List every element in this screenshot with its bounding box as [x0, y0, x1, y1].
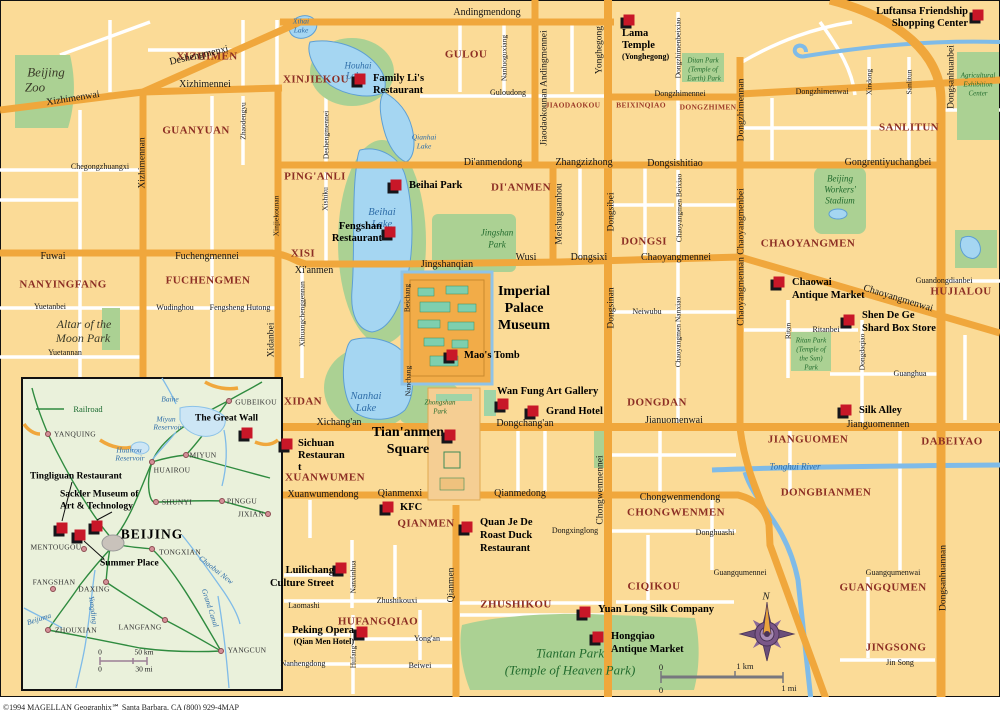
lama-temple-label: Temple: [622, 41, 655, 52]
label-fuchengmen: FUCHENGMEN: [166, 276, 251, 287]
family-lis-restaurant-label: Restaurant: [373, 86, 423, 97]
label-ritan-park: Ritan Park: [796, 338, 827, 345]
label-yonghegong: Yonghegong: [595, 26, 605, 74]
tiananmen-square-marker: [445, 430, 456, 441]
label-park: Park: [433, 409, 447, 416]
label-jingsong: JINGSONG: [866, 643, 927, 654]
label-dongzhimennan: Dongzhimennan: [737, 79, 747, 142]
label-xihai: Xihai: [293, 17, 309, 25]
shen-de-ge-shard-box-store-label: Shen De Ge: [862, 311, 915, 322]
the-great-wall-marker: [242, 428, 253, 439]
label-nanyingfang: NANYINGFANG: [19, 280, 106, 291]
label-dongxinglong: Dongxinglong: [552, 527, 598, 535]
label-stadium: Stadium: [825, 197, 855, 206]
label-dongsixi: Dongsixi: [571, 253, 608, 263]
label-guloudong: Guloudong: [490, 89, 526, 97]
label-jingshan: Jingshan: [481, 229, 514, 238]
wan-fung-art-gallery-label: Wan Fung Art Gallery: [497, 387, 598, 398]
label-xindong: Xindong: [865, 69, 873, 95]
label-dongchang-an: Dongchang'an: [496, 419, 553, 429]
label-fengsheng-hutong: Fengsheng Hutong: [210, 304, 271, 312]
label-chaoyangmennan-chaoyangmenbei: Chaoyangmennan Chaoyangmenbei: [737, 188, 747, 325]
yuan-long-silk-company-label: Yuan Long Silk Company: [598, 605, 714, 616]
label-dongsibei: Dongsibei: [607, 192, 617, 231]
label-wusi: Wusi: [516, 253, 537, 263]
quan-je-de-roast-duck-restaurant-marker: [462, 522, 473, 533]
label-fuchengmennei: Fuchengmennei: [175, 252, 239, 262]
sackler-museum-of-art-and-technology-label: Art & Technology: [60, 502, 133, 512]
grand-hotel-label: Grand Hotel: [546, 407, 603, 418]
label-dongbianmen: DONGBIANMEN: [781, 488, 872, 499]
label-xisi: XISI: [291, 249, 315, 260]
label-zhushikouxi: Zhushikouxi: [377, 597, 417, 605]
beihai-park-label: Beihai Park: [409, 181, 462, 192]
peking-opera-qian-men-hotel-marker: [357, 627, 368, 638]
label-park: Park: [804, 365, 818, 372]
label-fuwai: Fuwai: [41, 252, 66, 262]
chaowai-antique-market-marker: [774, 277, 785, 288]
label-the-sun: the Sun): [799, 356, 822, 363]
label-xinjiekou: XINJIEKOU: [283, 75, 349, 86]
label-zhangzizhong: Zhangzizhong: [555, 158, 612, 168]
yuan-long-silk-company-marker: [580, 607, 591, 618]
sackler-museum-of-art-and-technology-marker: [92, 521, 103, 532]
label-museum: Museum: [498, 319, 550, 333]
label-xizhimennei: Xizhimennei: [179, 80, 231, 90]
label-dongdan: DONGDAN: [627, 398, 687, 409]
label-lake: Lake: [417, 142, 432, 150]
label-qianmen: QIANMEN: [397, 519, 454, 530]
tingliguan-restaurant-label: Tingliguan Restaurant: [30, 472, 122, 482]
label-chaoyangmennei: Chaoyangmennei: [641, 253, 711, 263]
sichuan-restaurant-marker: [282, 439, 293, 450]
label-beijuma: Beijuma: [26, 612, 52, 627]
label-guangqumenwai: Guangqumenwai: [866, 569, 921, 577]
label-zhaodengyu: Zhaodengyu: [239, 102, 247, 140]
label-qianmen: Qianmen: [447, 568, 457, 603]
label-temple-of: (Temple of: [796, 347, 826, 354]
label-dongsi: DONGSI: [621, 237, 667, 248]
luftansa-friendship-shopping-center-label: Luftansa Friendship: [876, 7, 968, 18]
label-dongdaqiao: Dongdaqiao: [858, 334, 866, 371]
label-xuanwumendong: Xuanwumendong: [287, 490, 358, 500]
label-30-mi: 30 mi: [135, 665, 152, 673]
label-grand-canal: Grand Canal: [200, 588, 219, 628]
label-sanlitun: SANLITUN: [879, 123, 939, 134]
label-jianuomenwai: Jianuomenwai: [645, 416, 703, 426]
label-moon-park: Moon Park: [56, 332, 110, 344]
label-shunyi: SHUNYI: [162, 498, 192, 506]
label-chaoyangmen: CHAOYANGMEN: [761, 239, 855, 250]
label-dongzhimennei: Dongzhimennei: [654, 90, 705, 98]
the-great-wall-label: The Great Wall: [195, 414, 258, 424]
fengshan-restaurant-label: Fengshan: [339, 222, 382, 233]
label-sanlitun: Sanlitun: [905, 69, 913, 94]
sackler-museum-of-art-and-technology-label: Sackler Museum of: [60, 490, 138, 500]
label-zoo: Zoo: [25, 81, 45, 94]
label-neiwubu: Neiwubu: [632, 308, 661, 316]
label-imperial: Imperial: [498, 285, 550, 299]
label-lake: Lake: [356, 404, 376, 415]
label-dongsanhuannan: Dongsanhuannan: [939, 545, 949, 611]
luilichang-culture-street-label: Culture Street: [270, 579, 334, 590]
label-dongsinan: Dongsinan: [607, 287, 617, 328]
chaowai-antique-market-label: Chaowai: [792, 278, 832, 289]
label-nanluoguxiang: Nanluoguxiang: [500, 35, 508, 81]
label-yong-an: Yong'an: [414, 635, 440, 643]
label-1-km: 1 km: [736, 662, 753, 671]
label-jianguomennen: Jianguomennen: [847, 420, 910, 430]
hongqiao-antique-market-label: Antique Market: [611, 645, 684, 656]
luilichang-culture-street-marker: [336, 563, 347, 574]
label-nanchang: Nanchang: [404, 366, 412, 396]
label-n: N: [762, 592, 769, 603]
quan-je-de-roast-duck-restaurant-label: Restaurant: [480, 544, 530, 555]
label-dongzhimen: DONGZHIMEN: [680, 103, 737, 111]
label-zhongshan: Zhongshan: [424, 400, 455, 407]
label-temple-of: (Temple of: [688, 67, 718, 74]
label-jixian: JIXIAN: [238, 510, 264, 518]
label-xidanbei: Xidanbei: [267, 323, 277, 358]
label-chongwenmennei: Chongwenmennei: [596, 455, 606, 524]
luftansa-friendship-shopping-center-marker: [973, 10, 984, 21]
luilichang-culture-street-label: Luilichang: [286, 566, 334, 577]
label-park: Park: [488, 241, 506, 250]
label-beijing: Beijing: [27, 66, 65, 79]
label-railroad: Railroad: [73, 405, 102, 414]
silk-alley-label: Silk Alley: [859, 406, 902, 417]
label-hufang: Hufang: [349, 646, 357, 669]
summer-place-label: Summer Place: [100, 559, 159, 569]
fengshan-restaurant-marker: [385, 227, 396, 238]
label-deshengmenxi: Deshengmenxi: [169, 44, 230, 67]
label-center: Center: [968, 91, 987, 98]
label-tiantan-park: Tiantan Park: [536, 647, 604, 660]
label-lake: Lake: [294, 26, 309, 34]
label-yuetannan: Yuetannan: [48, 349, 82, 357]
label-chaoyangmen-nanxiao: Chaoyangmen Nanxiao: [674, 297, 682, 368]
label-agricultural: Agricultural: [961, 73, 996, 80]
kfc-label: KFC: [400, 503, 422, 514]
label-chongwenmendong: Chongwenmendong: [640, 493, 721, 503]
label-deshengmennei: Deshengmennei: [322, 111, 330, 159]
label-guangqumennei: Guangqumennei: [714, 569, 767, 577]
label-beijing: Beijing: [827, 175, 853, 184]
label-gubeikou: GUBEIKOU: [235, 398, 277, 406]
hongqiao-antique-market-marker: [593, 632, 604, 643]
label-nanhengdong: Nanhengdong: [281, 660, 326, 668]
tingliguan-restaurant-marker: [57, 523, 68, 534]
label-donghuashi: Donghuashi: [696, 529, 735, 537]
label-beihai: Beihai: [368, 208, 395, 219]
sichuan-restaurant-label: Sichuan: [298, 439, 334, 450]
label-0: 0: [98, 648, 102, 656]
label-dongzhimenbeixiao: Dongzhimenbeixiao: [674, 18, 682, 79]
label-guandongdianbei: Guandongdianbei: [916, 277, 973, 285]
label-reservoir: Reservoir: [115, 454, 144, 462]
lama-temple-label: (Yonghegong): [622, 53, 669, 61]
label-xuanwumen: XUANWUMEN: [285, 473, 365, 484]
fengshan-restaurant-label: Restaurant: [332, 234, 382, 245]
label-xizhimenwai: Xizhimenwai: [46, 90, 101, 108]
grand-hotel-marker: [528, 406, 539, 417]
label-jingshanqian: Jingshanqian: [421, 260, 473, 270]
shen-de-ge-shard-box-store-marker: [844, 315, 855, 326]
label-1-mi: 1 mi: [781, 684, 796, 693]
label-50-km: 50 km: [135, 648, 154, 656]
label-houhai: Houhai: [345, 62, 372, 71]
label-square: Square: [387, 443, 430, 457]
shen-de-ge-shard-box-store-label: Shard Box Store: [862, 324, 936, 335]
label-xichang-an: Xichang'an: [316, 418, 361, 428]
label-jiaodaokou: JIAODAOKOU: [546, 101, 601, 109]
label-ritan: Ritan: [784, 323, 792, 339]
quan-je-de-roast-duck-restaurant-label: Roast Duck: [480, 531, 532, 542]
label-ping-anli: PING'ANLI: [284, 172, 346, 183]
label-layer: XIZHIMENGUANYUANXINJIEKOUPING'ANLIGULOUD…: [0, 0, 1000, 710]
label-chaobai-new: Chaobai New: [198, 554, 235, 585]
label-jianguomen: JIANGUOMEN: [768, 435, 848, 446]
label-gongrentiyuchangbei: Gongrentiyuchangbei: [845, 158, 932, 168]
label-exhibition: Exhibition: [963, 82, 992, 89]
summer-place-marker: [75, 530, 86, 541]
label-tongxian: TONGXIAN: [159, 548, 201, 556]
label-yangcun: YANGCUN: [228, 646, 267, 654]
label-beiwei: Beiwei: [409, 662, 432, 670]
sichuan-restaurant-label: t: [298, 463, 302, 474]
label-beijing: BEIJING: [121, 527, 184, 541]
label-reservoir: Reservoir: [153, 423, 182, 431]
label-earth-park: Earth) Park: [687, 76, 721, 83]
label-altar-of-the: Altar of the: [57, 318, 112, 330]
label-langfang: LANGFANG: [118, 623, 161, 631]
label-baihe: Baihe: [161, 395, 179, 403]
label-xinjiekounan: Xinjiekounan: [272, 196, 280, 237]
label-zhouxian: ZHOUXIAN: [55, 626, 97, 634]
label-mentougou: MENTOUGOU: [31, 543, 82, 551]
label-dabeiyao: DABEIYAO: [921, 437, 982, 448]
label-di-anmen: DI'ANMEN: [491, 183, 551, 194]
sichuan-restaurant-label: Restauran: [298, 451, 345, 462]
label-ditan-park: Ditan Park: [687, 58, 718, 65]
label-nanxinhua: Nanxinhua: [349, 561, 357, 594]
label-fangshan: FANGSHAN: [33, 578, 76, 586]
label-qianmedong: Qianmedong: [494, 489, 546, 499]
chaowai-antique-market-label: Antique Market: [792, 291, 865, 302]
label-laomashi: Laomashi: [288, 602, 320, 610]
label-xizhimennan: Xizhimennan: [138, 137, 148, 188]
silk-alley-marker: [841, 405, 852, 416]
label-dongsishitiao: Dongsishitiao: [647, 159, 703, 169]
label-0: 0: [659, 663, 663, 672]
label-yanquing: YANQUING: [54, 430, 96, 438]
label-temple-of-heaven-park: (Temple of Heaven Park): [505, 664, 636, 677]
maos-tomb-marker: [447, 350, 458, 361]
label-tian-anmen: Tian'anmen: [372, 426, 444, 440]
label-yongding: Yongding: [88, 596, 99, 625]
kfc-marker: [383, 502, 394, 513]
label-xidan: XIDAN: [284, 397, 322, 408]
label-qianhai: Qianhai: [412, 133, 437, 141]
copyright-text: ©1994 MAGELLAN Geographix℠ Santa Barbara…: [3, 703, 239, 710]
copyright-bar: ©1994 MAGELLAN Geographix℠ Santa Barbara…: [3, 697, 1000, 710]
label-chaoyangmen-beixiao: Chaoyangmen Beixiao: [675, 174, 683, 243]
label-0: 0: [98, 665, 102, 673]
peking-opera-qian-men-hotel-label: Peking Opera: [292, 626, 354, 637]
label-guanghua: Guanghua: [894, 370, 927, 378]
label-wudinghou: Wudinghou: [156, 304, 193, 312]
label-qianmenxi: Qianmenxi: [378, 489, 422, 499]
lama-temple-label: Lama: [622, 29, 648, 40]
label-palace: Palace: [505, 302, 544, 316]
beijing-tourist-map: XIZHIMENGUANYUANXINJIEKOUPING'ANLIGULOUD…: [0, 0, 1000, 710]
label-jin-song: Jin Song: [886, 659, 914, 667]
label-yuetanbei: Yuetanbei: [34, 303, 66, 311]
quan-je-de-roast-duck-restaurant-label: Quan Je De: [480, 518, 533, 529]
label-hujialou: HUJIALOU: [930, 287, 991, 298]
label-miyun: MIYUN: [190, 451, 217, 459]
label-ciqikou: CIQIKOU: [628, 582, 681, 593]
label-beixinqiao: BEIXINQIAO: [616, 101, 666, 109]
luftansa-friendship-shopping-center-label: Shopping Center: [892, 19, 968, 30]
label-beichang: Beichang: [403, 284, 411, 312]
label-gulou: GULOU: [445, 50, 487, 61]
label-0: 0: [659, 686, 663, 695]
label-meishuguanhou: Meishuguanhou: [555, 183, 565, 244]
label-nanhai: Nanhai: [351, 392, 382, 403]
label-daxing: DAXING: [78, 585, 109, 593]
label-tonghui-river: Tonghui River: [770, 463, 821, 472]
family-lis-restaurant-marker: [355, 74, 366, 85]
label-zhushikou: ZHUSHIKOU: [480, 600, 551, 611]
label-dongsanhuanbei: Dongsanhuanbei: [947, 45, 957, 109]
maos-tomb-label: Mao's Tomb: [464, 351, 520, 362]
hongqiao-antique-market-label: Hongqiao: [611, 632, 655, 643]
label-xi-anmen: Xi'anmen: [295, 266, 333, 276]
family-lis-restaurant-label: Family Li's: [373, 74, 424, 85]
label-workers: Workers': [824, 186, 856, 195]
label-pinggu: PINGGU: [227, 497, 257, 505]
peking-opera-qian-men-hotel-label: (Qian Men Hotel): [294, 638, 354, 646]
label-chegongzhuangxi: Chegongzhuangxi: [71, 163, 129, 171]
label-huairou: HUAIROU: [154, 466, 191, 474]
label-xihuangchenggennan: Xihuangchenggennan: [298, 281, 306, 346]
beihai-park-marker: [391, 180, 402, 191]
label-chongwenmen: CHONGWENMEN: [627, 508, 725, 519]
wan-fung-art-gallery-marker: [498, 399, 509, 410]
label-jiaodaokounan-andingmennei: Jiaodaokounan Andingmennei: [540, 30, 550, 145]
label-dongzhimenwai: Dongzhimenwai: [796, 88, 849, 96]
label-ritanbei: Ritanbei: [812, 326, 839, 334]
label-guanyuan: GUANYUAN: [162, 126, 229, 137]
label-xishiku: Xishiku: [321, 187, 329, 211]
lama-temple-marker: [624, 15, 635, 26]
label-di-anmendong: Di'anmendong: [464, 158, 522, 168]
label-guangqumen: GUANGQUMEN: [839, 583, 926, 594]
label-andingmendong: Andingmendong: [453, 8, 520, 18]
